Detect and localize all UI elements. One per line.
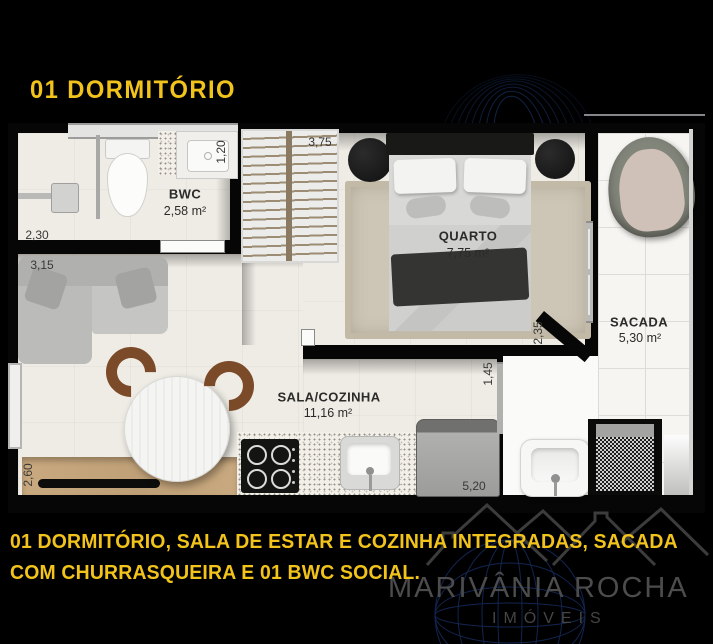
room-label-bwc: BWC (169, 187, 201, 202)
dimension-kitchen-width: 5,20 (462, 479, 485, 493)
cooktop-icon (241, 439, 299, 493)
room-label-sala-cozinha: SALA/COZINHA (277, 390, 380, 405)
dimension-kitchen-passage: 1,45 (481, 362, 495, 385)
brand-tagline: IMÓVEIS (492, 610, 608, 628)
bwc-counter (158, 131, 176, 175)
shower-head-icon (51, 183, 79, 213)
room-area-sacada: 5,30 m² (619, 331, 661, 345)
shower-glass-partition (96, 135, 100, 219)
quarto-door-jamb (301, 329, 315, 346)
page-title: 01 DORMITÓRIO (30, 76, 236, 105)
dimension-quarto-depth: 2,35 (531, 321, 545, 344)
sofa-graphic (18, 256, 168, 364)
barbecue-grill-icon (588, 419, 662, 495)
shower-arm (18, 193, 53, 199)
room-area-sala-cozinha: 11,16 m² (304, 406, 352, 420)
sacada-railing (689, 129, 693, 495)
closet-hangers (241, 129, 339, 263)
brand-name: MARIVÂNIA ROCHA (388, 572, 689, 605)
room-area-bwc: 2,58 m² (164, 204, 206, 218)
dimension-quarto-width: 3,75 (308, 135, 331, 149)
room-area-quarto: 7,75 m² (447, 246, 489, 260)
marketing-image: 01 DORMITÓRIO (0, 0, 713, 644)
floor-plan: BWC 2,58 m² QUARTO 7,75 m² SACADA 5,30 m… (8, 123, 705, 513)
dimension-bwc-vanity: 1,20 (214, 140, 228, 163)
dimension-bwc-entry: 2,30 (25, 228, 48, 242)
sacada-glass-door (586, 221, 593, 323)
room-label-sacada: SACADA (610, 315, 668, 330)
fridge-icon (416, 419, 500, 497)
laundry-tub-icon (520, 439, 590, 497)
kitchen-sink-icon (340, 436, 400, 490)
toilet-icon (103, 139, 150, 217)
bwc-door (160, 240, 225, 253)
service-panel (664, 435, 691, 495)
room-label-quarto: QUARTO (439, 229, 498, 244)
description-line-2: COM CHURRASQUEIRA E 01 BWC SOCIAL. (10, 562, 420, 585)
nightstand-lamp-right (535, 139, 575, 179)
blue-arcs-decoration (435, 42, 595, 124)
dimension-sala-depth: 2,60 (21, 463, 35, 486)
left-window (8, 363, 22, 449)
bwc-vanity-sink (176, 131, 238, 179)
kitchen-glass-door (497, 362, 503, 434)
dimension-sala-width: 3,15 (30, 258, 53, 272)
tv-icon (38, 479, 160, 488)
sacada-top-ledge (584, 114, 705, 116)
description-line-1: 01 DORMITÓRIO, SALA DE ESTAR E COZINHA I… (10, 531, 678, 554)
